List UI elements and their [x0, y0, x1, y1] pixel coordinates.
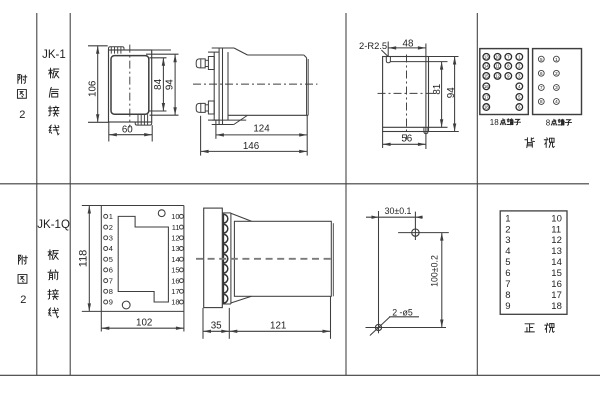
- svg-text:14: 14: [551, 257, 562, 268]
- svg-text:15: 15: [171, 266, 179, 275]
- svg-text:18: 18: [484, 105, 489, 110]
- svg-text:106: 106: [87, 80, 98, 97]
- svg-text:3: 3: [505, 235, 510, 246]
- svg-text:60: 60: [122, 125, 133, 136]
- svg-text:4: 4: [505, 246, 510, 257]
- svg-text:8: 8: [505, 290, 510, 301]
- svg-text:14: 14: [484, 64, 489, 69]
- svg-text:8: 8: [540, 99, 543, 104]
- svg-text:124: 124: [253, 124, 270, 135]
- svg-text:9: 9: [505, 301, 510, 312]
- svg-text:13: 13: [551, 246, 562, 257]
- svg-text:12: 12: [171, 234, 179, 243]
- svg-text:100±0.2: 100±0.2: [430, 255, 440, 287]
- svg-text:81: 81: [432, 84, 443, 95]
- svg-text:12: 12: [495, 74, 500, 79]
- svg-text:8: 8: [109, 287, 113, 296]
- svg-text:8: 8: [546, 118, 551, 127]
- svg-text:2-R2.5: 2-R2.5: [359, 40, 387, 51]
- svg-text:2: 2: [505, 224, 510, 235]
- svg-text:1: 1: [109, 212, 113, 221]
- svg-text:10: 10: [171, 212, 179, 221]
- svg-text:6: 6: [505, 268, 510, 279]
- svg-text:13: 13: [171, 244, 179, 253]
- svg-text:2: 2: [555, 71, 558, 76]
- svg-text:11: 11: [495, 64, 500, 69]
- svg-text:11: 11: [551, 224, 561, 235]
- svg-text:18: 18: [171, 298, 179, 307]
- svg-text:4: 4: [555, 99, 558, 104]
- svg-text:102: 102: [136, 318, 152, 329]
- svg-text:17: 17: [171, 287, 179, 296]
- svg-text:17: 17: [551, 290, 562, 301]
- svg-text:6: 6: [109, 266, 113, 275]
- svg-text:11: 11: [172, 223, 180, 232]
- svg-text:1: 1: [505, 213, 510, 224]
- svg-text:30±0.1: 30±0.1: [385, 206, 412, 216]
- svg-text:2: 2: [20, 294, 26, 306]
- svg-text:94: 94: [446, 87, 457, 98]
- svg-text:5: 5: [540, 57, 543, 62]
- svg-text:7: 7: [540, 85, 543, 90]
- svg-text:2: 2: [19, 109, 25, 121]
- svg-text:16: 16: [551, 279, 562, 290]
- svg-text:94: 94: [165, 79, 176, 90]
- svg-text:3: 3: [555, 85, 558, 90]
- svg-text:JK-1: JK-1: [42, 49, 66, 61]
- svg-text:5: 5: [109, 255, 113, 264]
- svg-text:118: 118: [78, 250, 90, 268]
- svg-text:2: 2: [109, 223, 113, 232]
- svg-text:10: 10: [551, 213, 562, 224]
- svg-text:56: 56: [401, 134, 412, 145]
- svg-text:14: 14: [171, 255, 179, 264]
- svg-text:7: 7: [505, 279, 510, 290]
- svg-text:146: 146: [243, 141, 260, 152]
- svg-text:18: 18: [551, 301, 562, 312]
- svg-text:10: 10: [495, 54, 500, 59]
- svg-text:15: 15: [551, 268, 562, 279]
- svg-text:121: 121: [270, 321, 286, 332]
- svg-text:18: 18: [490, 118, 499, 127]
- svg-text:9: 9: [109, 298, 113, 307]
- svg-text:1: 1: [555, 57, 558, 62]
- svg-text:5: 5: [505, 257, 510, 268]
- svg-text:JK-1Q: JK-1Q: [37, 219, 70, 231]
- svg-text:15: 15: [484, 74, 489, 79]
- svg-text:84: 84: [153, 78, 164, 89]
- svg-text:4: 4: [109, 244, 113, 253]
- svg-text:2 -ø5: 2 -ø5: [392, 307, 413, 317]
- svg-text:35: 35: [211, 320, 222, 331]
- svg-text:13: 13: [484, 54, 489, 59]
- svg-text:48: 48: [403, 38, 414, 49]
- svg-text:7: 7: [109, 276, 113, 285]
- svg-text:17: 17: [484, 95, 489, 100]
- svg-text:16: 16: [171, 276, 179, 285]
- svg-text:3: 3: [109, 234, 113, 243]
- svg-text:6: 6: [540, 71, 543, 76]
- svg-text:12: 12: [551, 235, 562, 246]
- svg-text:16: 16: [484, 84, 489, 89]
